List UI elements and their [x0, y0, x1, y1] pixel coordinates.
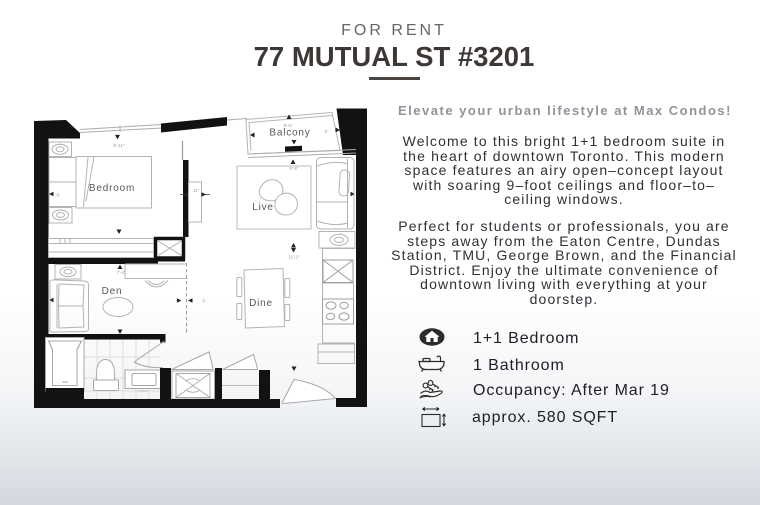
svg-text:Dine: Dine: [249, 298, 273, 309]
svg-text:8'-5": 8'-5": [284, 123, 293, 128]
svg-text:Live: Live: [252, 202, 274, 213]
svg-text:11'-2": 11'-2": [288, 255, 300, 260]
svg-text:11": 11": [193, 188, 200, 193]
svg-text:8'-6": 8'-6": [290, 166, 299, 171]
svg-text:9': 9': [324, 129, 328, 134]
svg-text:5': 5': [202, 299, 206, 304]
svg-text:9': 9': [56, 193, 60, 198]
svg-text:Balcony: Balcony: [269, 128, 310, 139]
svg-text:Den: Den: [102, 286, 123, 297]
svg-text:8'-11": 8'-11": [113, 143, 125, 148]
svg-text:Bedroom: Bedroom: [89, 183, 135, 194]
svg-text:7'-4": 7'-4": [117, 270, 126, 275]
